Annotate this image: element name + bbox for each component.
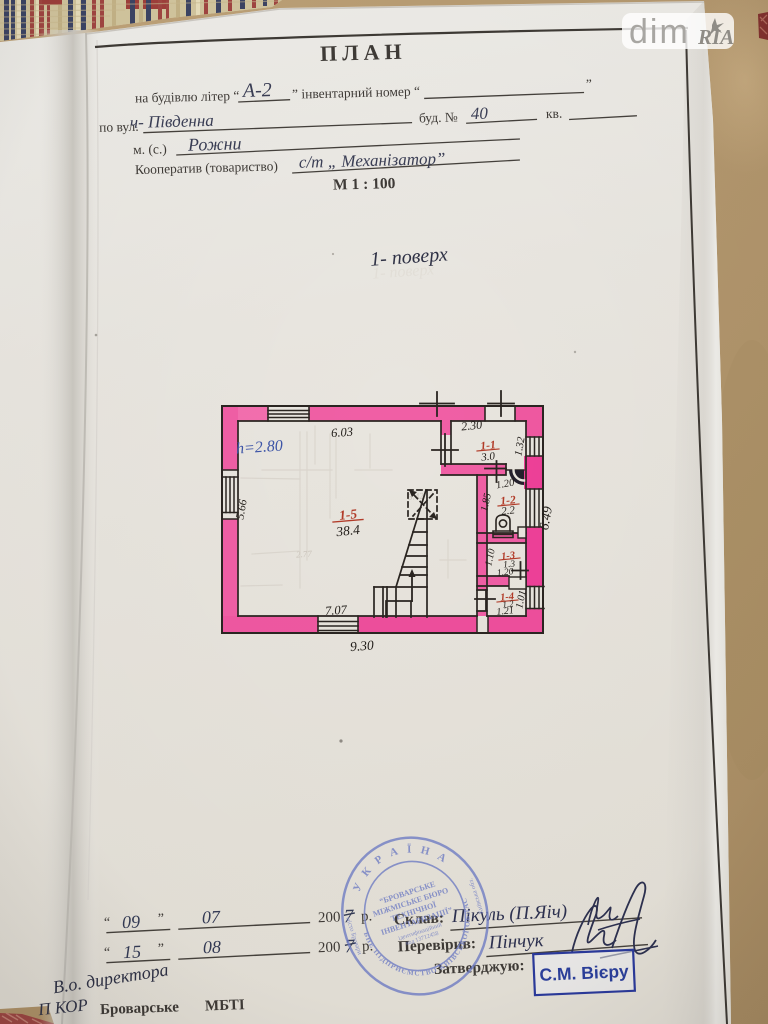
svg-text:dim: dim — [629, 13, 690, 51]
